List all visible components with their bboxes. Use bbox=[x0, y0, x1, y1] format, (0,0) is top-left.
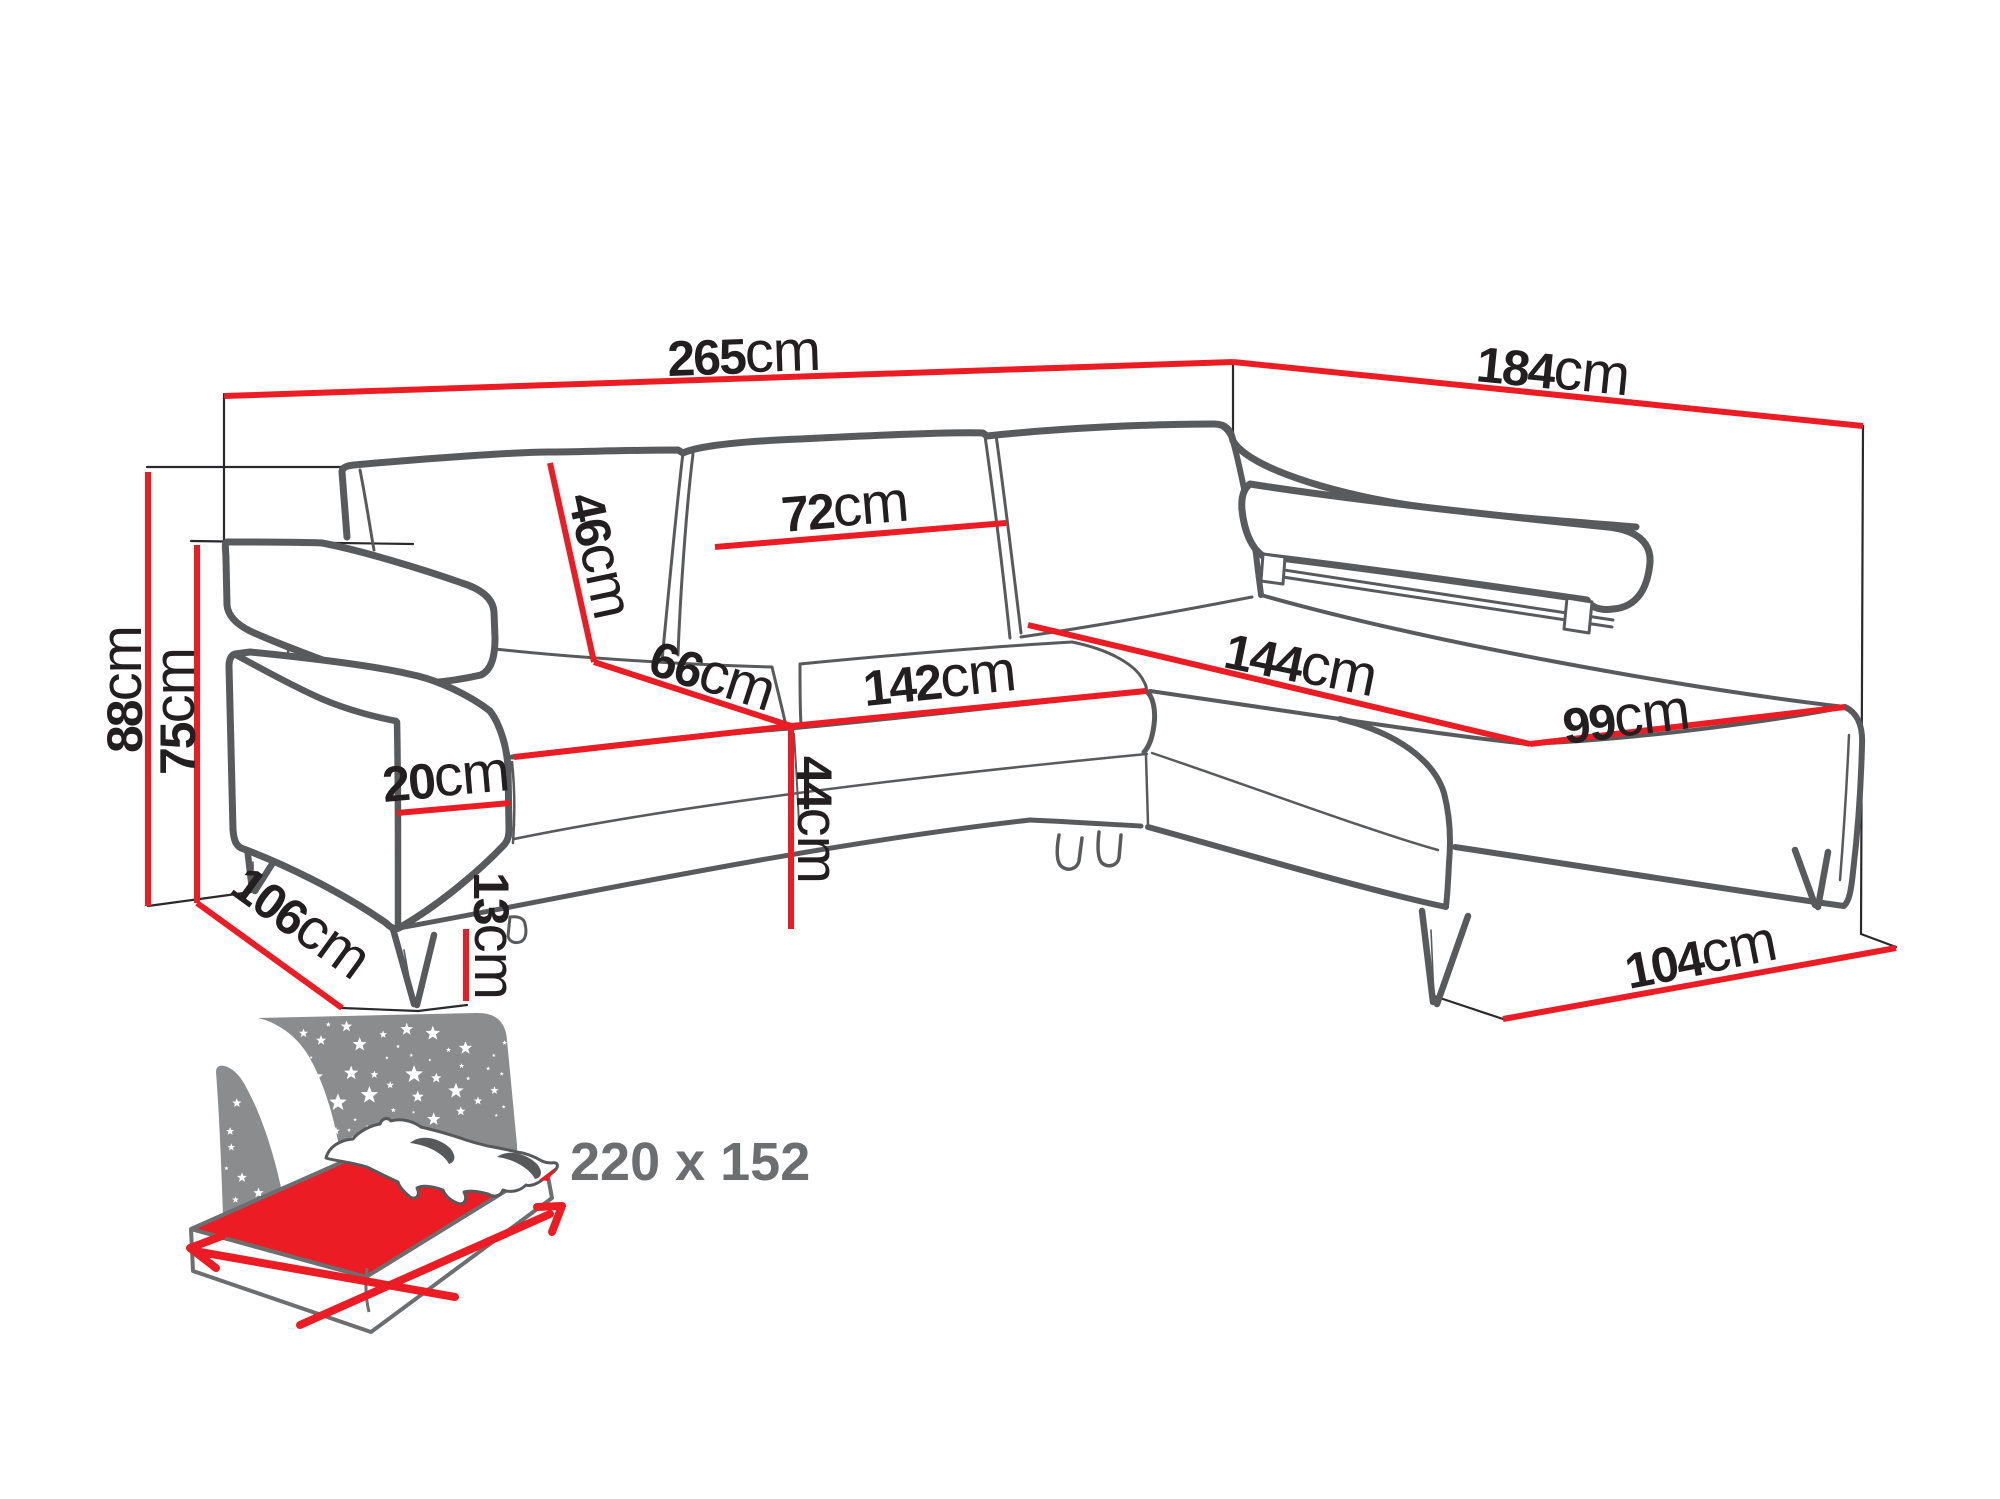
svg-text:75cm: 75cm bbox=[142, 648, 207, 775]
svg-text:44cm: 44cm bbox=[785, 756, 850, 883]
svg-text:220 x 152: 220 x 152 bbox=[570, 1132, 810, 1192]
svg-text:13cm: 13cm bbox=[462, 872, 527, 999]
